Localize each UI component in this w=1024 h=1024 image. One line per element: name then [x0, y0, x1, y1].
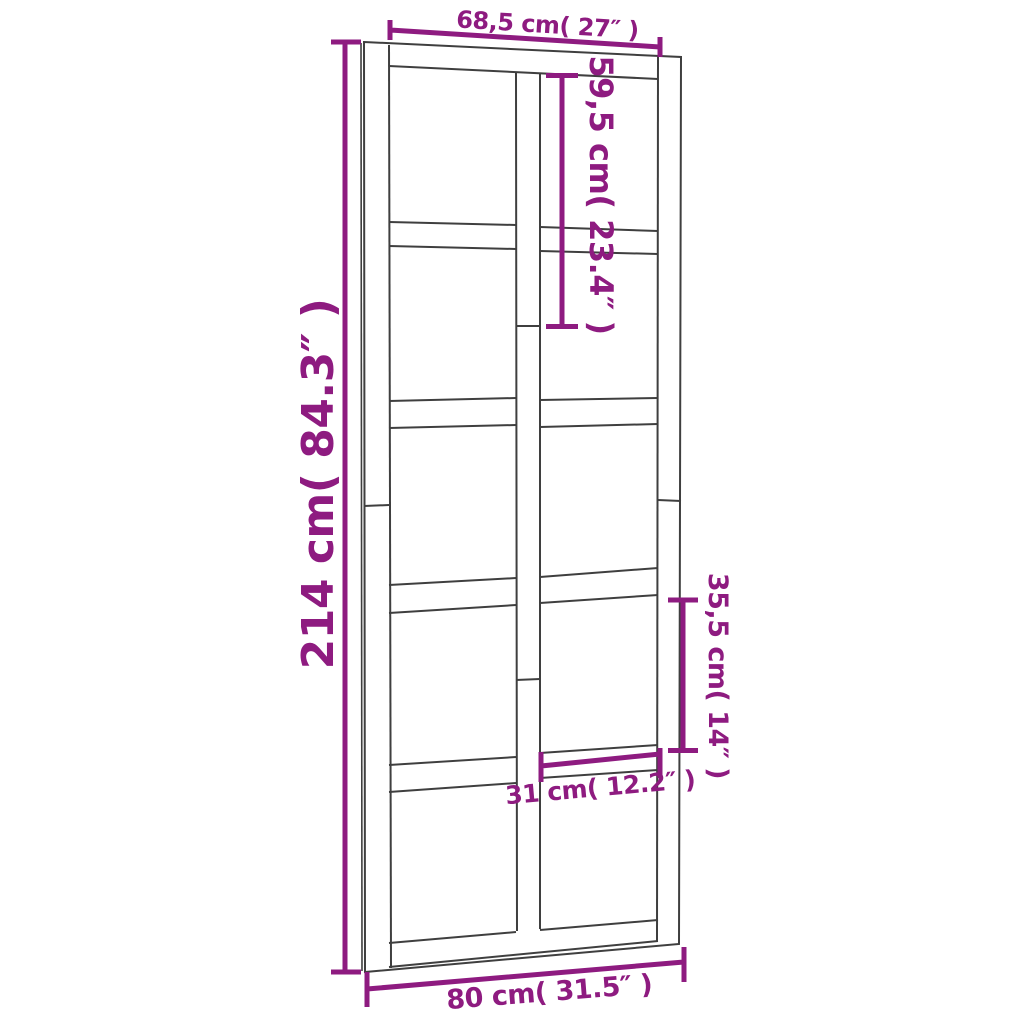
- door-right-stile-inner: [657, 56, 658, 941]
- dimension-label-overall-width: 80 cm( 31.5″ ): [445, 969, 653, 1016]
- dimension-label-inner-width-top: 68,5 cm( 27″ ): [456, 5, 640, 44]
- product-dimension-diagram: 68,5 cm( 27″ ) 214 cm( 84.3″ ) 59,5 cm( …: [0, 0, 1024, 1024]
- door-drawing: [361, 42, 681, 972]
- dimension-label-pane-height: 35,5 cm( 14″ ): [702, 573, 733, 779]
- door-dimension-drawing: 68,5 cm( 27″ ) 214 cm( 84.3″ ) 59,5 cm( …: [0, 0, 1024, 1024]
- right-stile-joint: [658, 500, 681, 501]
- left-stile-joint: [364, 505, 389, 506]
- muntin-joint-lower: [516, 679, 540, 680]
- dimension-line: [668, 600, 698, 751]
- dimension-pane-height: 35,5 cm( 14″ ): [668, 573, 733, 779]
- dimension-upper-section-height: 59,5 cm( 23.4″ ): [546, 55, 620, 334]
- rail-3: [389, 568, 658, 613]
- dimension-overall-height: 214 cm( 84.3″ ): [293, 42, 361, 972]
- door-left-stile-inner: [389, 45, 391, 968]
- bottom-rail-edge: [389, 920, 658, 943]
- dimension-pane-width: 31 cm( 12.2″ ): [504, 748, 696, 810]
- door-left-edge-line: [361, 43, 362, 971]
- door-outer-edge: [364, 42, 681, 972]
- dimension-label-upper-section-height: 59,5 cm( 23.4″ ): [582, 55, 620, 334]
- rail-2: [389, 398, 658, 428]
- door-bottom-inner-edge: [389, 941, 658, 967]
- dimension-line: [546, 76, 578, 327]
- dimension-label-pane-width: 31 cm( 12.2″ ): [504, 765, 696, 810]
- dimension-label-overall-height: 214 cm( 84.3″ ): [293, 299, 344, 670]
